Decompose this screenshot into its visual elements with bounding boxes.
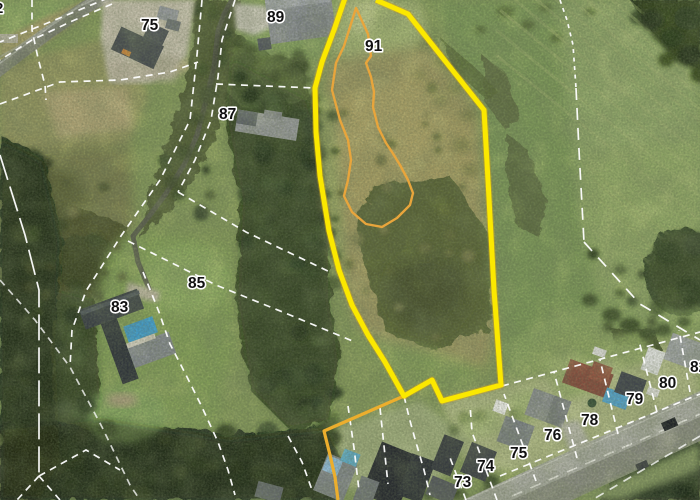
- svg-text:91: 91: [365, 38, 383, 55]
- svg-text:73: 73: [454, 474, 472, 491]
- svg-text:83: 83: [111, 299, 129, 316]
- svg-text:2: 2: [0, 0, 3, 17]
- svg-text:79: 79: [626, 391, 644, 408]
- svg-text:78: 78: [581, 412, 599, 429]
- svg-text:75: 75: [141, 17, 159, 34]
- svg-text:76: 76: [544, 427, 562, 444]
- svg-text:80: 80: [659, 375, 676, 392]
- svg-text:85: 85: [188, 275, 206, 292]
- svg-text:82: 82: [690, 359, 700, 376]
- svg-text:87: 87: [219, 106, 236, 123]
- svg-text:75: 75: [510, 445, 528, 462]
- svg-text:89: 89: [267, 9, 285, 26]
- svg-text:74: 74: [477, 458, 495, 475]
